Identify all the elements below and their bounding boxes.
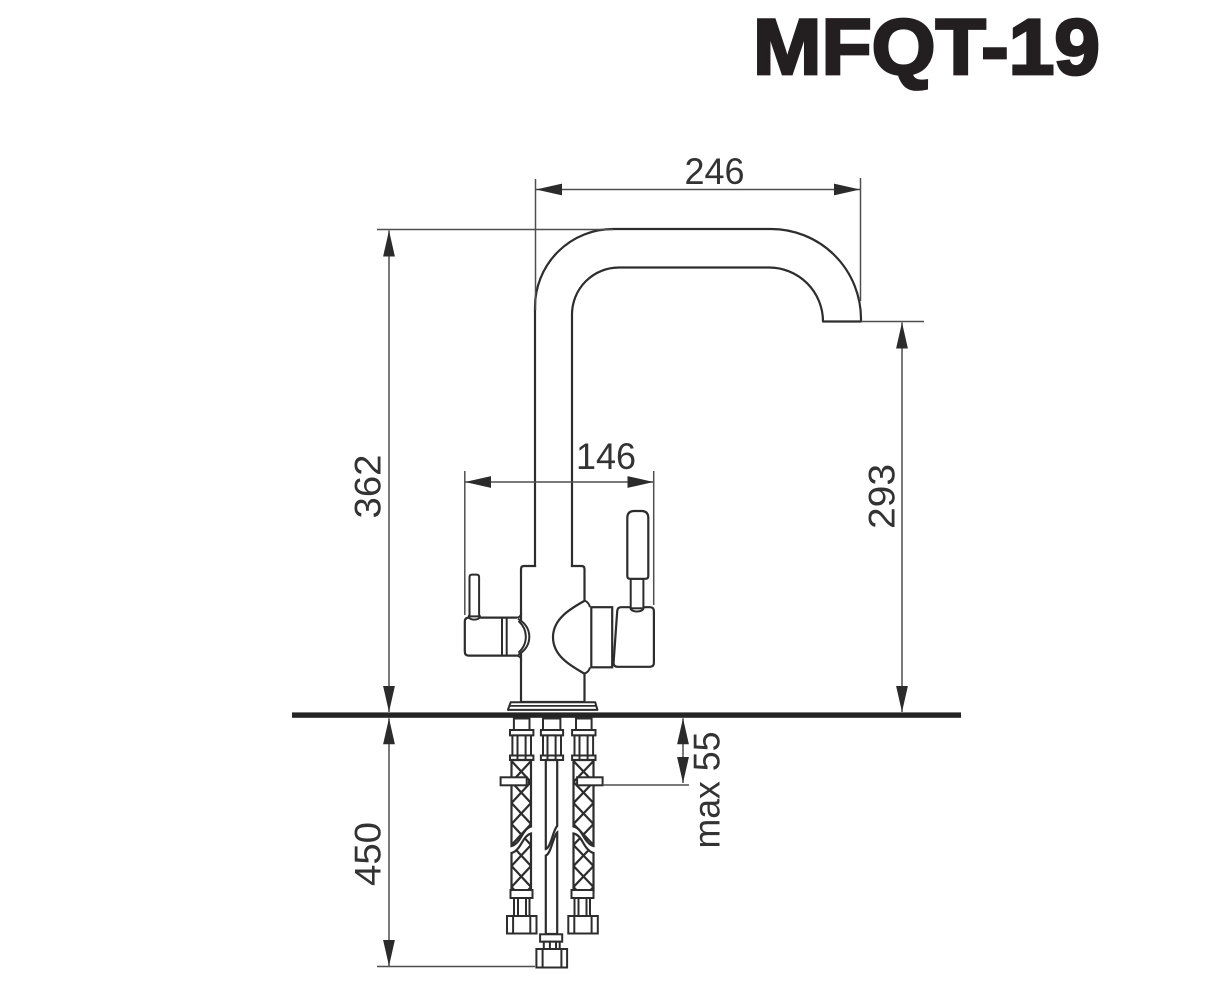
svg-text:max 55: max 55 <box>686 732 728 849</box>
svg-text:293: 293 <box>861 464 903 529</box>
svg-text:MFQT-19: MFQT-19 <box>753 3 1100 91</box>
svg-text:450: 450 <box>347 822 389 886</box>
svg-text:362: 362 <box>347 455 389 519</box>
svg-text:246: 246 <box>685 150 745 192</box>
svg-text:146: 146 <box>576 435 636 477</box>
